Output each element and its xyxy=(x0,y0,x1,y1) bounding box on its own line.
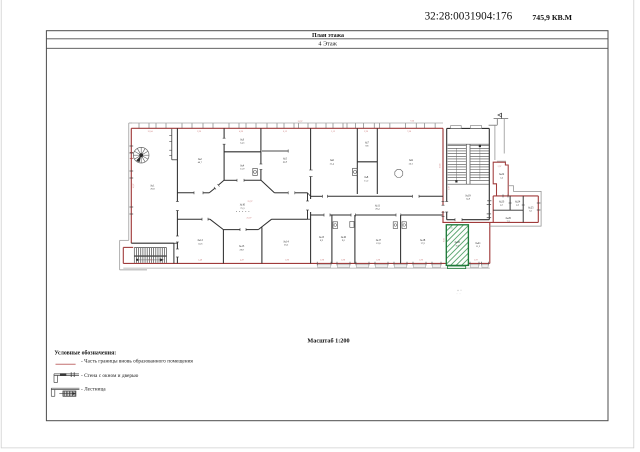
svg-text:32:28:0031904:176: 32:28:0031904:176 xyxy=(425,11,513,23)
svg-text:745,9 КВ.М: 745,9 КВ.М xyxy=(532,13,572,22)
svg-text:2,97: 2,97 xyxy=(449,186,451,190)
svg-text:Масштаб 1:200: Масштаб 1:200 xyxy=(307,337,349,344)
svg-text:- Часть границы вновь образова: - Часть границы вновь образованного поме… xyxy=(81,357,193,364)
svg-text:Условные обозначения:: Условные обозначения: xyxy=(54,350,116,357)
svg-text:8,12: 8,12 xyxy=(283,131,287,133)
svg-text:2,97: 2,97 xyxy=(498,166,502,168)
svg-text:- Лестница: - Лестница xyxy=(81,386,106,392)
svg-text:4 Этаж: 4 Этаж xyxy=(318,41,337,48)
svg-text:- Стена с окном и дверью: - Стена с окном и дверью xyxy=(81,373,138,379)
svg-text:План этажа: План этажа xyxy=(312,33,344,39)
svg-text:3,12: 3,12 xyxy=(331,131,335,133)
